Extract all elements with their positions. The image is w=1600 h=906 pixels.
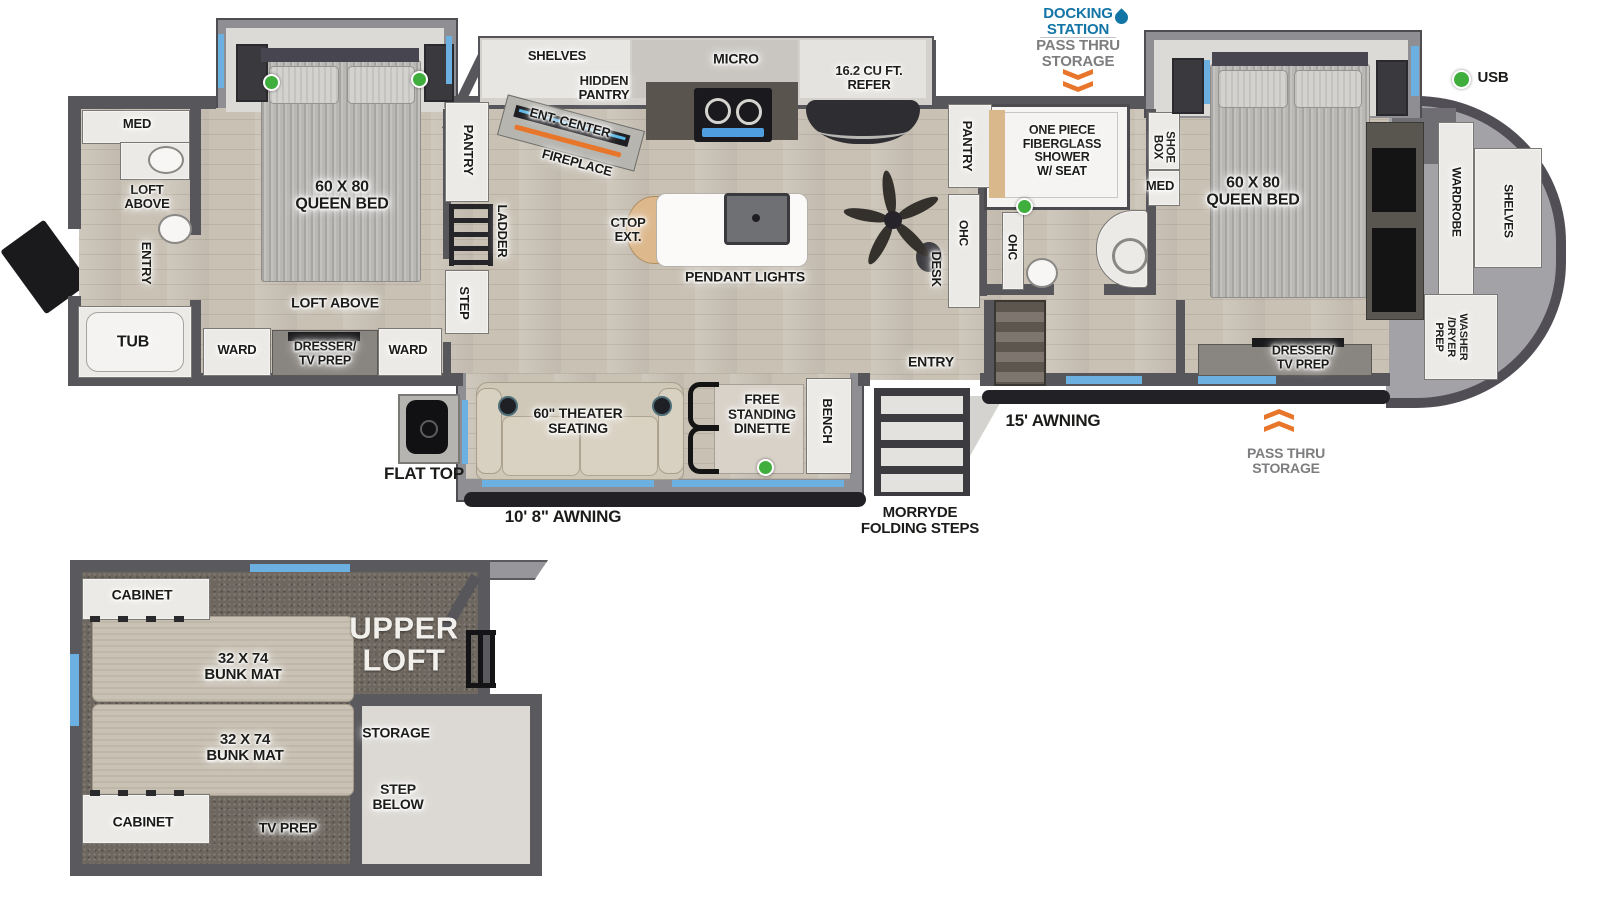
washer-dryer-label: WASHER /DRYER PREP xyxy=(1432,313,1468,360)
front-bed-pillow-right xyxy=(1294,70,1362,108)
wall-left-upper xyxy=(68,96,81,229)
usb-legend-dot xyxy=(1452,70,1471,89)
ward-right-label: WARD xyxy=(389,343,428,357)
bench-label: BENCH xyxy=(820,398,834,443)
ward-left-label: WARD xyxy=(218,343,257,357)
rear-dresser-label: DRESSER/ TV PREP xyxy=(294,341,356,368)
rear-bed-pillow-right xyxy=(347,66,415,104)
refer-label: 16.2 CU FT. REFER xyxy=(835,64,902,92)
front-slide-window-right xyxy=(1376,60,1408,116)
rear-entry-label: ENTRY xyxy=(139,242,153,285)
upper-loft-title: UPPER LOFT xyxy=(349,612,458,675)
shoe-box-label: SHOE BOX xyxy=(1151,131,1176,163)
dinette-label: FREE STANDING DINETTE xyxy=(728,393,796,437)
bath-sink xyxy=(1112,238,1148,274)
dinette-chair-top xyxy=(688,382,719,430)
refer-handle-arc xyxy=(816,120,910,139)
front-closet-door-top xyxy=(1372,148,1416,212)
wardrobe-label: WARDROBE xyxy=(1450,167,1463,237)
flat-top-label: FLAT TOP xyxy=(384,465,464,483)
cupholder-left xyxy=(498,396,518,416)
rear-awning-label: 10' 8" AWNING xyxy=(505,508,622,526)
usb-dot-rear-bed-left xyxy=(263,74,280,91)
fan-hub xyxy=(884,211,902,229)
bedroom-stairs xyxy=(994,300,1046,386)
bottom-wall-window-2 xyxy=(1198,376,1276,384)
loft-entry-ladder xyxy=(466,630,496,688)
stove-burner-left xyxy=(705,98,731,124)
front-slide-window-glass-left xyxy=(1204,60,1210,104)
loft-cabinet-top-label: CABINET xyxy=(112,587,173,602)
rear-queen-bed-label: 60 X 80 QUEEN BED xyxy=(295,179,388,214)
pass-thru-arrow-down xyxy=(1063,68,1093,93)
loft-ladder xyxy=(449,204,493,266)
shower-seat xyxy=(989,110,1005,198)
front-bed-headboard xyxy=(1212,52,1368,66)
bunk-top-label: 32 X 74 BUNK MAT xyxy=(204,651,281,683)
tv-prep-label: TV PREP xyxy=(259,820,318,835)
step-label: STEP xyxy=(457,286,471,319)
main-awning-label: 15' AWNING xyxy=(1006,412,1101,430)
living-slide-window-side xyxy=(462,400,468,464)
pass-thru-top-label: PASS THRU STORAGE xyxy=(1036,38,1120,70)
wall-bottom-stub xyxy=(858,373,870,386)
chevron-down-icon xyxy=(1063,69,1093,80)
folding-steps-label: MORRYDE FOLDING STEPS xyxy=(861,505,979,537)
main-awning-bar xyxy=(982,390,1390,404)
living-slide-window-2 xyxy=(672,480,844,487)
tub-label: TUB xyxy=(117,333,149,350)
ctop-ext-label: CTOP EXT. xyxy=(610,216,645,244)
rear-awning-bar xyxy=(464,492,866,507)
usb-dot-dinette xyxy=(757,459,774,476)
desk-surface xyxy=(948,194,980,308)
front-dresser-label: DRESSER/ TV PREP xyxy=(1272,345,1334,372)
island-faucet xyxy=(752,214,760,222)
front-bed-pillow-left xyxy=(1218,70,1288,108)
rear-bedroom-loft-above-label: LOFT ABOVE xyxy=(291,295,379,310)
desk-label: DESK xyxy=(929,251,943,286)
folding-steps xyxy=(874,388,970,496)
loft-cabinet-bottom-hinges xyxy=(90,790,200,796)
rear-med-label: MED xyxy=(123,117,151,131)
storage-label: STORAGE xyxy=(362,725,430,740)
bunk-bottom-label: 32 X 74 BUNK MAT xyxy=(206,732,283,764)
wall-top-rear xyxy=(68,96,216,109)
micro-label: MICRO xyxy=(713,51,759,66)
usb-dot-rear-bed-right xyxy=(411,71,428,88)
flat-top-burner-icon xyxy=(420,420,438,438)
rear-sink xyxy=(148,146,184,174)
wall-rearbath-upper xyxy=(190,109,201,235)
pass-thru-arrow-up xyxy=(1264,408,1294,433)
front-med-label: MED xyxy=(1146,179,1174,193)
living-slide-window-1 xyxy=(482,480,654,487)
step-below-label: STEP BELOW xyxy=(372,782,423,812)
docking-station-label: DOCKING STATION xyxy=(1043,6,1112,38)
wall-stairs-side xyxy=(984,300,994,384)
floorplan-diagram: DOCKING STATION PASS THRU STORAGE USB 10… xyxy=(0,0,1600,906)
water-drop-icon xyxy=(1112,8,1130,26)
bath-toilet xyxy=(1026,258,1058,288)
rear-pantry-label: PANTRY xyxy=(461,125,475,176)
loft-window-left xyxy=(70,654,79,726)
rear-slide-window-glass-right xyxy=(446,36,452,84)
shelves-label: SHELVES xyxy=(528,49,586,63)
rear-toilet xyxy=(158,214,192,244)
front-slide-window-left xyxy=(1172,58,1204,114)
usb-dot-shower xyxy=(1016,198,1033,215)
loft-cabinet-top-hinges xyxy=(90,616,200,622)
front-slide-window-glass-right xyxy=(1411,46,1419,96)
pendant-lights-label: PENDANT LIGHTS xyxy=(685,269,805,284)
pass-thru-front-label: PASS THRU STORAGE xyxy=(1247,446,1325,476)
living-pantry-label: PANTRY xyxy=(960,121,974,172)
usb-label: USB xyxy=(1477,70,1508,86)
chevron-up-icon xyxy=(1264,421,1294,432)
stove-burner-right xyxy=(736,99,762,125)
rear-bed-headboard xyxy=(261,48,419,62)
oven-glow xyxy=(702,128,764,137)
bottom-wall-window-1 xyxy=(1066,376,1142,384)
front-queen-bed-label: 60 X 80 QUEEN BED xyxy=(1206,175,1299,210)
loft-cabinet-bottom-label: CABINET xyxy=(113,814,174,829)
cap-shelves-label: SHELVES xyxy=(1502,184,1515,238)
cupholder-right xyxy=(652,396,672,416)
front-closet-door-bottom xyxy=(1372,228,1416,312)
dinette-chair-bottom xyxy=(688,426,719,474)
wall-bedroom1-stub xyxy=(1176,300,1185,380)
desk-ohc-label: OHC xyxy=(957,220,970,246)
rear-slide-window-glass-left xyxy=(218,34,224,88)
rear-loft-above-label: LOFT ABOVE xyxy=(124,183,169,211)
shower-label: ONE PIECE FIBERGLASS SHOWER W/ SEAT xyxy=(1023,124,1102,178)
ladder-label: LADDER xyxy=(495,205,509,258)
theater-seating-label: 60" THEATER SEATING xyxy=(534,406,623,436)
wall-bedroom2-lower xyxy=(443,342,451,373)
hidden-pantry-label: HIDDEN PANTRY xyxy=(579,74,630,102)
bath-ohc-label: OHC xyxy=(1006,234,1019,260)
chevron-up-icon xyxy=(1264,409,1294,420)
main-entry-label: ENTRY xyxy=(908,354,954,369)
loft-window-top xyxy=(250,564,350,572)
chevron-down-icon xyxy=(1063,81,1093,92)
